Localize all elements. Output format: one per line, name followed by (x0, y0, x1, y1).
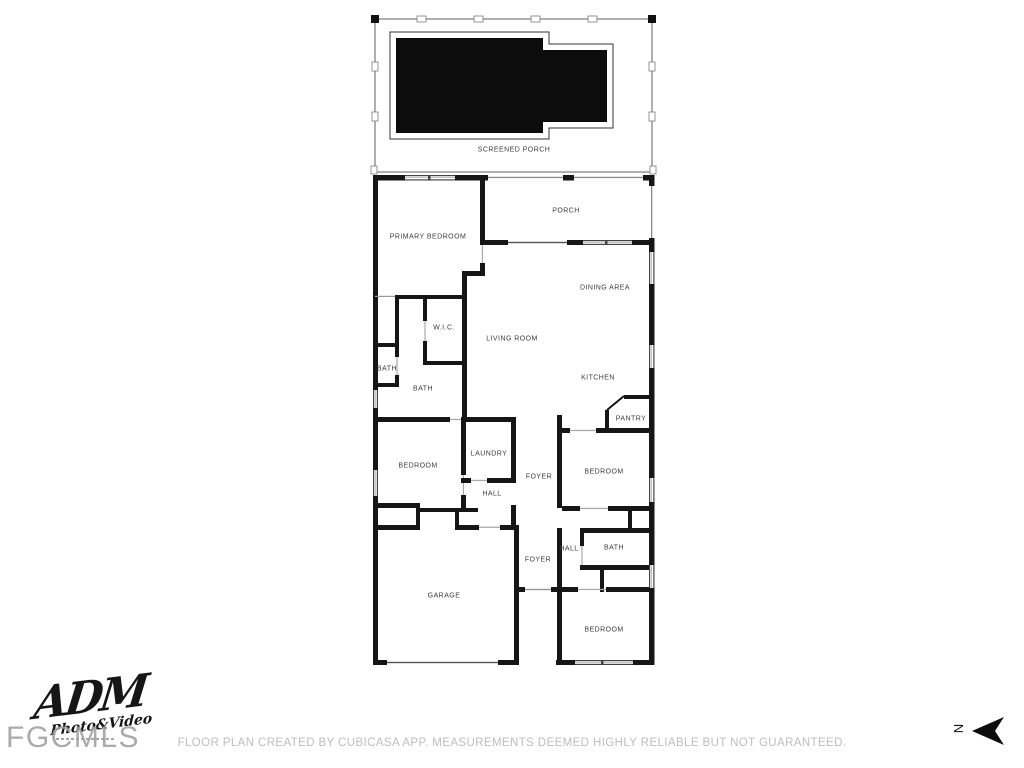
room-label-primary-bedroom: PRIMARY BEDROOM (390, 234, 467, 241)
north-compass: N (946, 704, 1016, 756)
room-label-bedroom-4: BEDROOM (584, 627, 623, 634)
room-label-bedroom-2: BEDROOM (398, 463, 437, 470)
interior-walls (373, 175, 654, 665)
room-label-dining-area: DINING AREA (580, 285, 630, 292)
floor-plan-drawing (0, 0, 1024, 768)
room-label-wic: W.I.C. (433, 325, 455, 332)
compass-north-label: N (951, 724, 966, 733)
room-label-pantry: PANTRY (616, 416, 646, 423)
mls-watermark: FGCMLS (6, 723, 140, 753)
room-label-screened-porch: SCREENED PORCH (478, 147, 550, 154)
room-label-kitchen: KITCHEN (581, 375, 615, 382)
cubicasa-disclaimer: FLOOR PLAN CREATED BY CUBICASA APP. MEAS… (178, 737, 847, 749)
room-label-porch: PORCH (552, 208, 580, 215)
room-label-bath-3: BATH (604, 545, 624, 552)
room-label-laundry: LAUNDRY (471, 451, 507, 458)
room-label-hall-1: HALL (482, 491, 501, 498)
room-label-bath-2: BATH (413, 386, 433, 393)
room-label-bedroom-3: BEDROOM (584, 469, 623, 476)
room-label-foyer-2: FOYER (525, 557, 551, 564)
room-label-foyer-1: FOYER (526, 474, 552, 481)
floor-plan-page: SCREENED PORCH PORCH PRIMARY BEDROOM DIN… (0, 0, 1024, 768)
room-label-bath-1: BATH (377, 366, 397, 373)
pool-shape (390, 32, 613, 139)
room-label-garage: GARAGE (428, 593, 461, 600)
room-label-living-room: LIVING ROOM (486, 336, 538, 343)
room-label-hall-2: HALL (559, 546, 578, 553)
